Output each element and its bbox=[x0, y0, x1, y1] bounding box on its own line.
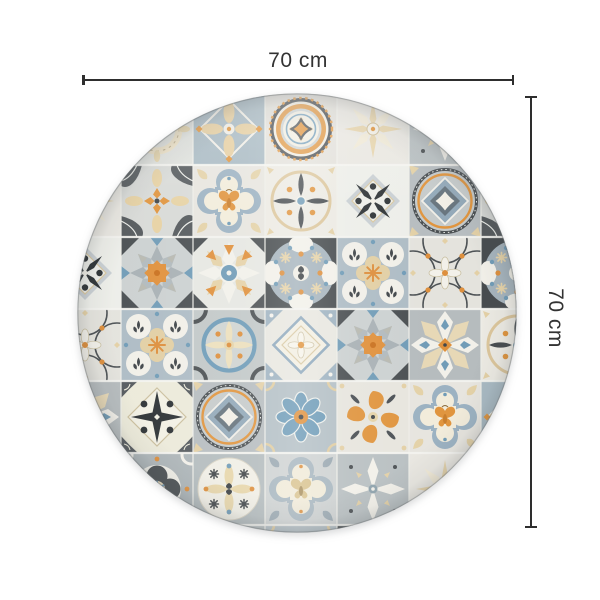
rug-tile-beige_star8 bbox=[121, 525, 193, 533]
rug-tile-four_orbs bbox=[481, 453, 517, 525]
height-dimension-top-tick bbox=[525, 96, 537, 98]
rug-clipped-area bbox=[77, 93, 517, 533]
height-dimension-line bbox=[530, 97, 532, 528]
width-dimension-line bbox=[83, 79, 513, 81]
width-dimension-right-tick bbox=[512, 75, 515, 85]
width-dimension-label: 70 cm bbox=[83, 48, 513, 74]
width-dimension-left-tick bbox=[82, 75, 85, 85]
rug-tile-black_star bbox=[481, 525, 517, 533]
product-dimension-diagram: 70 cm 70 cm bbox=[0, 0, 600, 600]
rug-tile-ring_diamond bbox=[481, 93, 517, 165]
rug-tile-wreath bbox=[77, 525, 121, 533]
rug-tile-blue_flower bbox=[77, 444, 130, 533]
height-dimension-label: 70 cm bbox=[544, 278, 568, 358]
rug-rim-shadow bbox=[77, 93, 517, 533]
rug-product-image bbox=[77, 93, 517, 533]
rug-tile-arc_cross bbox=[391, 507, 499, 533]
rug-tile-white_petal bbox=[77, 93, 121, 165]
height-dimension-bottom-tick bbox=[525, 526, 537, 528]
